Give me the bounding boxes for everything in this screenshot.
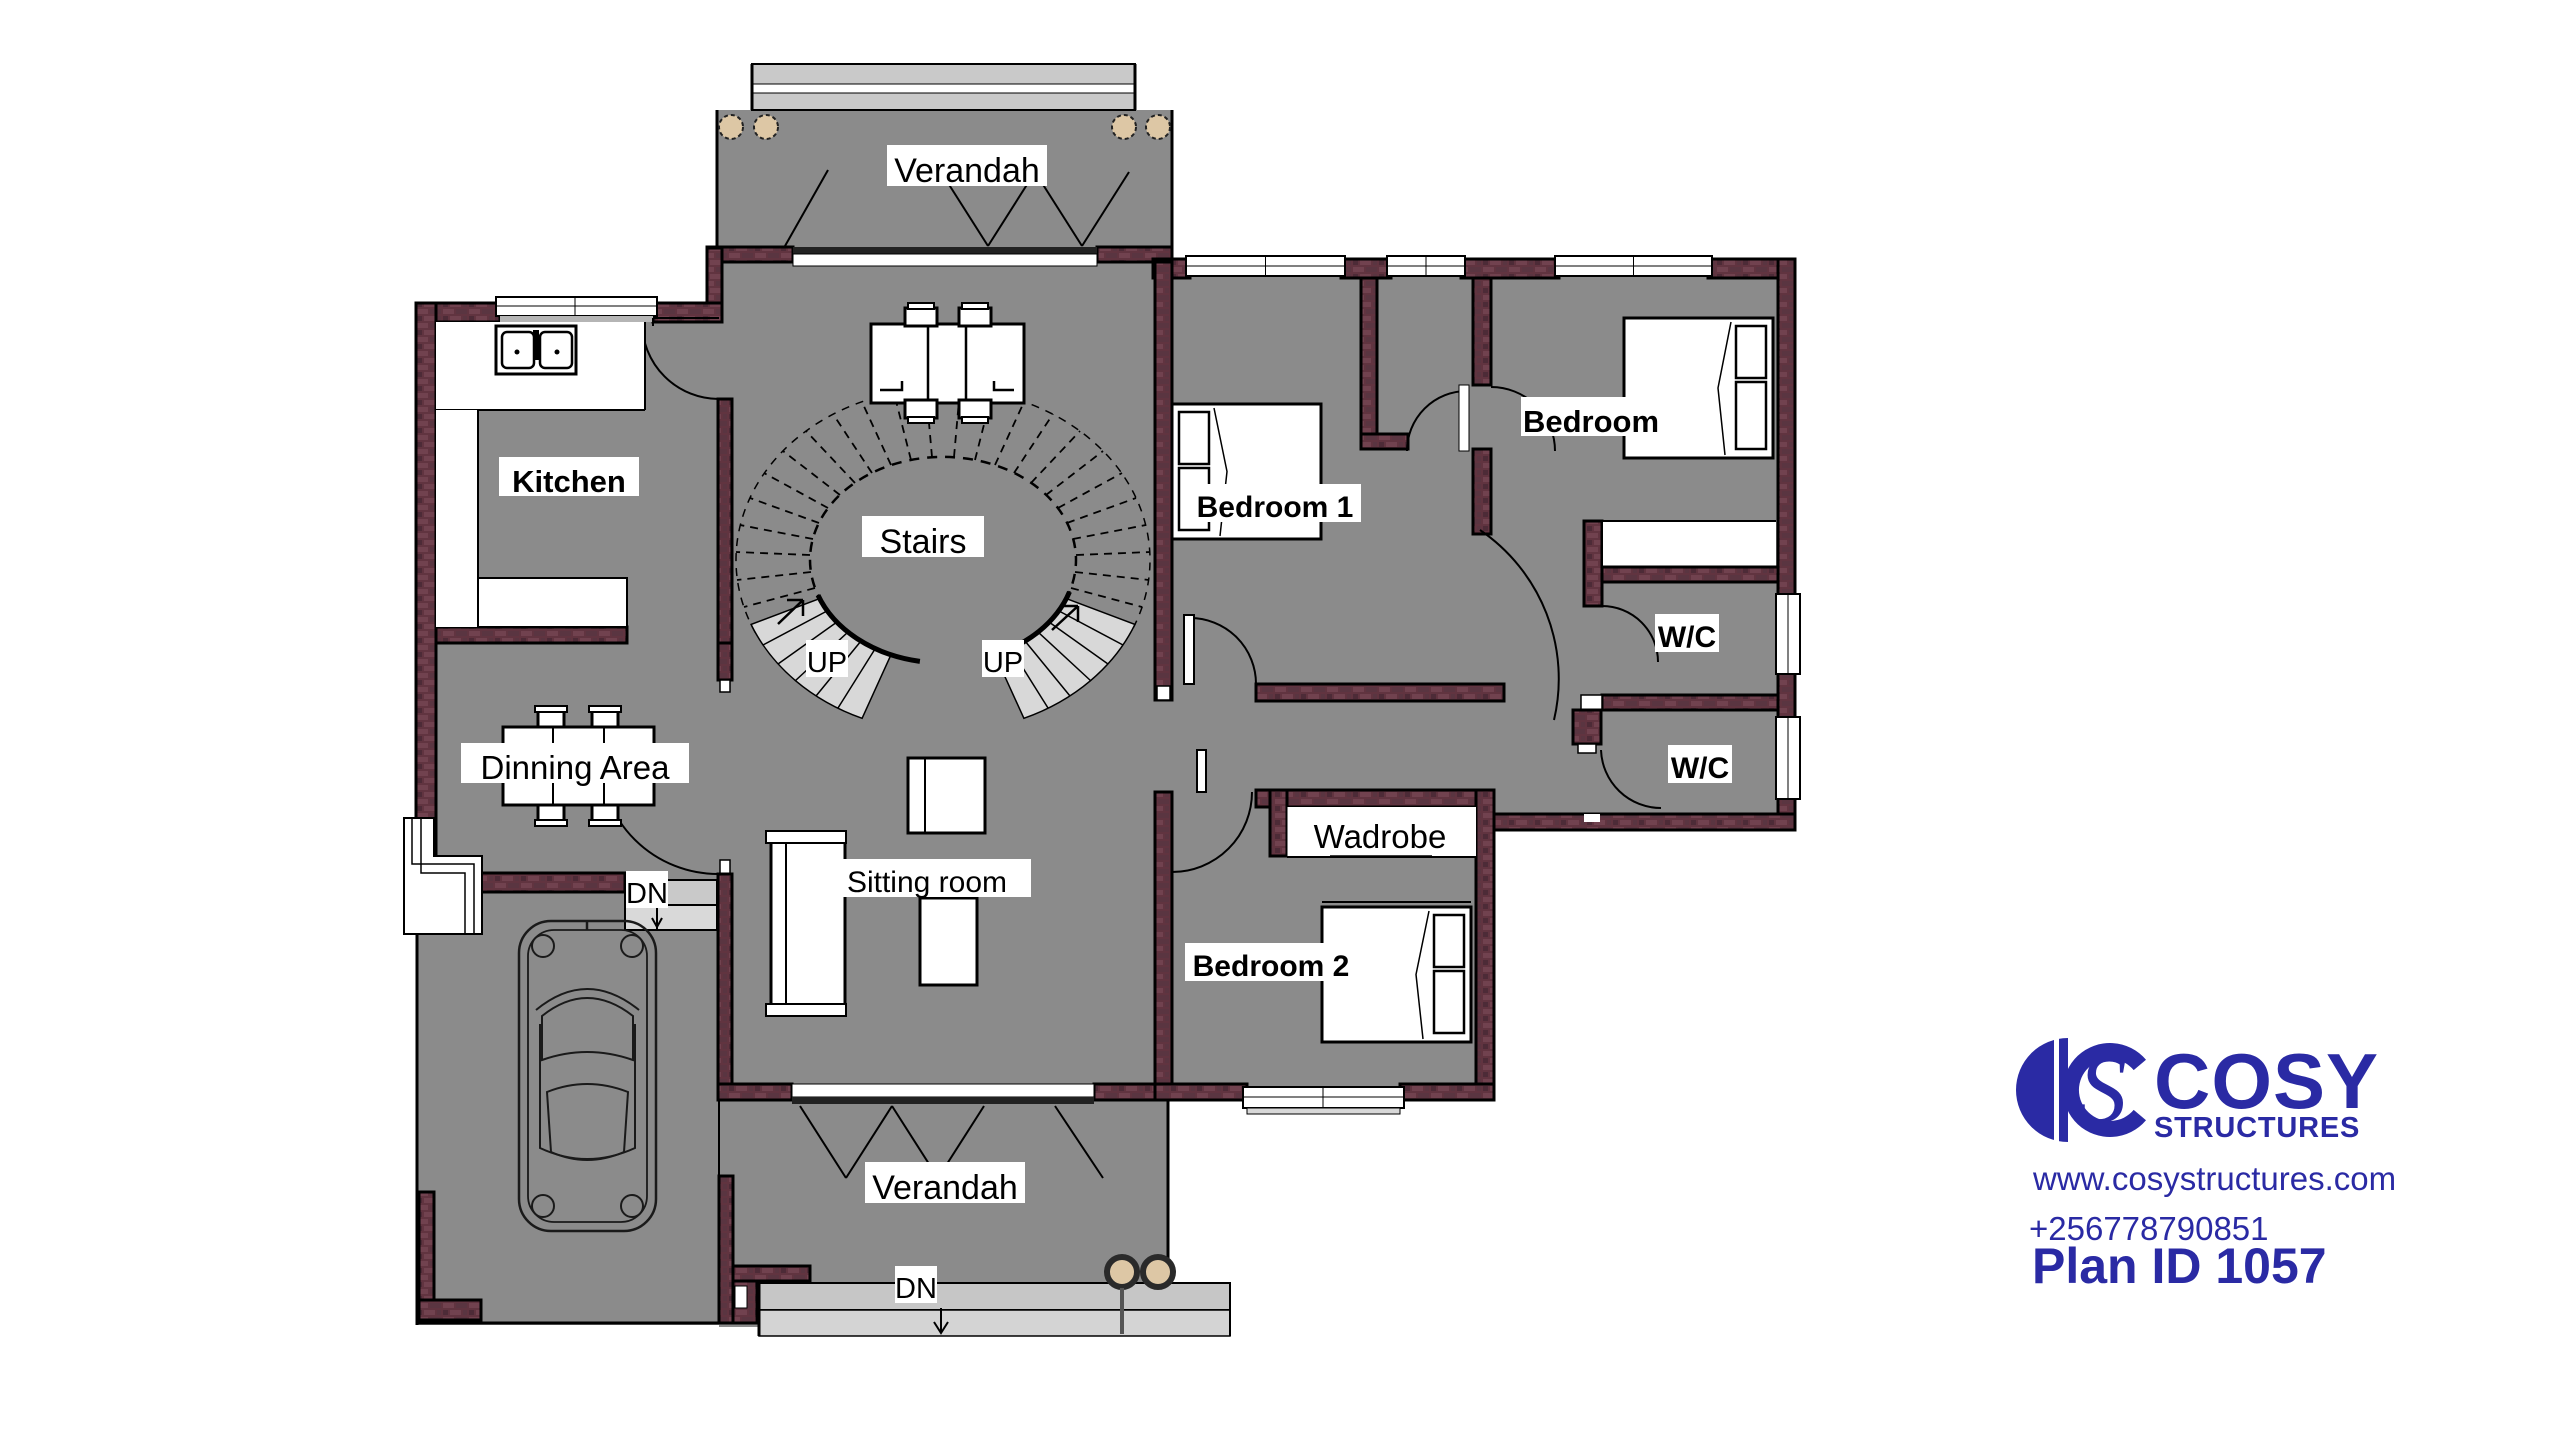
svg-text:W/C: W/C xyxy=(1658,621,1716,654)
svg-text:STRUCTURES: STRUCTURES xyxy=(2154,1112,2360,1144)
svg-text:UP: UP xyxy=(807,647,847,679)
svg-text:Dinning Area: Dinning Area xyxy=(481,749,671,786)
svg-text:Sitting room: Sitting room xyxy=(847,866,1007,899)
svg-text:Bedroom 1: Bedroom 1 xyxy=(1197,491,1354,524)
svg-text:W/C: W/C xyxy=(1671,752,1729,785)
svg-text:UP: UP xyxy=(983,647,1023,679)
svg-text:Bedroom: Bedroom xyxy=(1523,404,1659,439)
svg-text:S: S xyxy=(2078,1036,2127,1144)
svg-text:Verandah: Verandah xyxy=(894,152,1040,190)
svg-text:Verandah: Verandah xyxy=(872,1169,1018,1207)
svg-text:Plan ID 1057: Plan ID 1057 xyxy=(2032,1238,2327,1294)
svg-text:DN: DN xyxy=(895,1273,937,1305)
svg-text:Kitchen: Kitchen xyxy=(512,464,626,499)
svg-text:Bedroom 2: Bedroom 2 xyxy=(1193,950,1350,983)
svg-text:Wadrobe: Wadrobe xyxy=(1314,818,1447,855)
svg-text:DN: DN xyxy=(626,878,668,910)
svg-text:Stairs: Stairs xyxy=(880,523,967,561)
svg-text:www.cosystructures.com: www.cosystructures.com xyxy=(2032,1160,2396,1197)
